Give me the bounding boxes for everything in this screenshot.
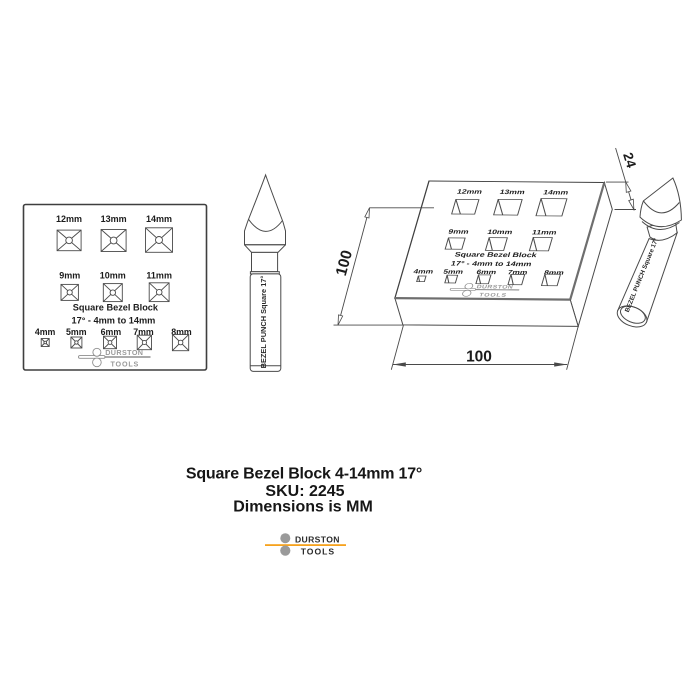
svg-text:11mm: 11mm — [146, 271, 172, 281]
svg-text:Square Bezel Block: Square Bezel Block — [73, 303, 159, 313]
svg-text:Square Bezel Block: Square Bezel Block — [454, 251, 539, 259]
svg-text:TOOLS: TOOLS — [478, 292, 507, 298]
svg-text:Dimensions is MM: Dimensions is MM — [233, 499, 373, 516]
svg-text:12mm: 12mm — [456, 188, 483, 196]
svg-text:9mm: 9mm — [59, 271, 80, 281]
svg-text:Square Bezel Block 4-14mm 17°: Square Bezel Block 4-14mm 17° — [186, 466, 422, 483]
svg-text:5mm: 5mm — [66, 327, 87, 337]
svg-text:11mm: 11mm — [531, 229, 558, 237]
svg-text:100: 100 — [333, 248, 356, 277]
svg-text:7mm: 7mm — [507, 268, 529, 276]
svg-text:100: 100 — [466, 349, 492, 366]
svg-text:TOOLS: TOOLS — [301, 547, 335, 557]
svg-text:12mm: 12mm — [56, 214, 82, 224]
svg-text:10mm: 10mm — [100, 271, 126, 281]
svg-text:DURSTON: DURSTON — [105, 348, 143, 357]
svg-text:4mm: 4mm — [35, 327, 56, 337]
svg-text:DURSTON: DURSTON — [476, 284, 515, 290]
svg-text:9mm: 9mm — [447, 228, 469, 236]
svg-text:TOOLS: TOOLS — [111, 360, 140, 369]
svg-text:14mm: 14mm — [542, 189, 569, 197]
svg-text:8mm: 8mm — [543, 269, 565, 277]
svg-text:17° - 4mm to 14mm: 17° - 4mm to 14mm — [71, 315, 155, 325]
svg-text:6mm: 6mm — [101, 327, 122, 337]
svg-text:10mm: 10mm — [486, 228, 513, 236]
svg-text:14mm: 14mm — [146, 214, 172, 224]
svg-text:24: 24 — [620, 151, 639, 170]
svg-text:13mm: 13mm — [499, 188, 526, 196]
svg-text:4mm: 4mm — [412, 268, 434, 276]
svg-text:SKU: 2245: SKU: 2245 — [265, 483, 344, 500]
svg-text:17° - 4mm to 14mm: 17° - 4mm to 14mm — [450, 260, 533, 268]
svg-text:BEZEL PUNCH Square 17°: BEZEL PUNCH Square 17° — [259, 276, 268, 369]
svg-text:13mm: 13mm — [101, 214, 127, 224]
svg-text:DURSTON: DURSTON — [295, 535, 340, 545]
svg-text:5mm: 5mm — [442, 268, 464, 276]
